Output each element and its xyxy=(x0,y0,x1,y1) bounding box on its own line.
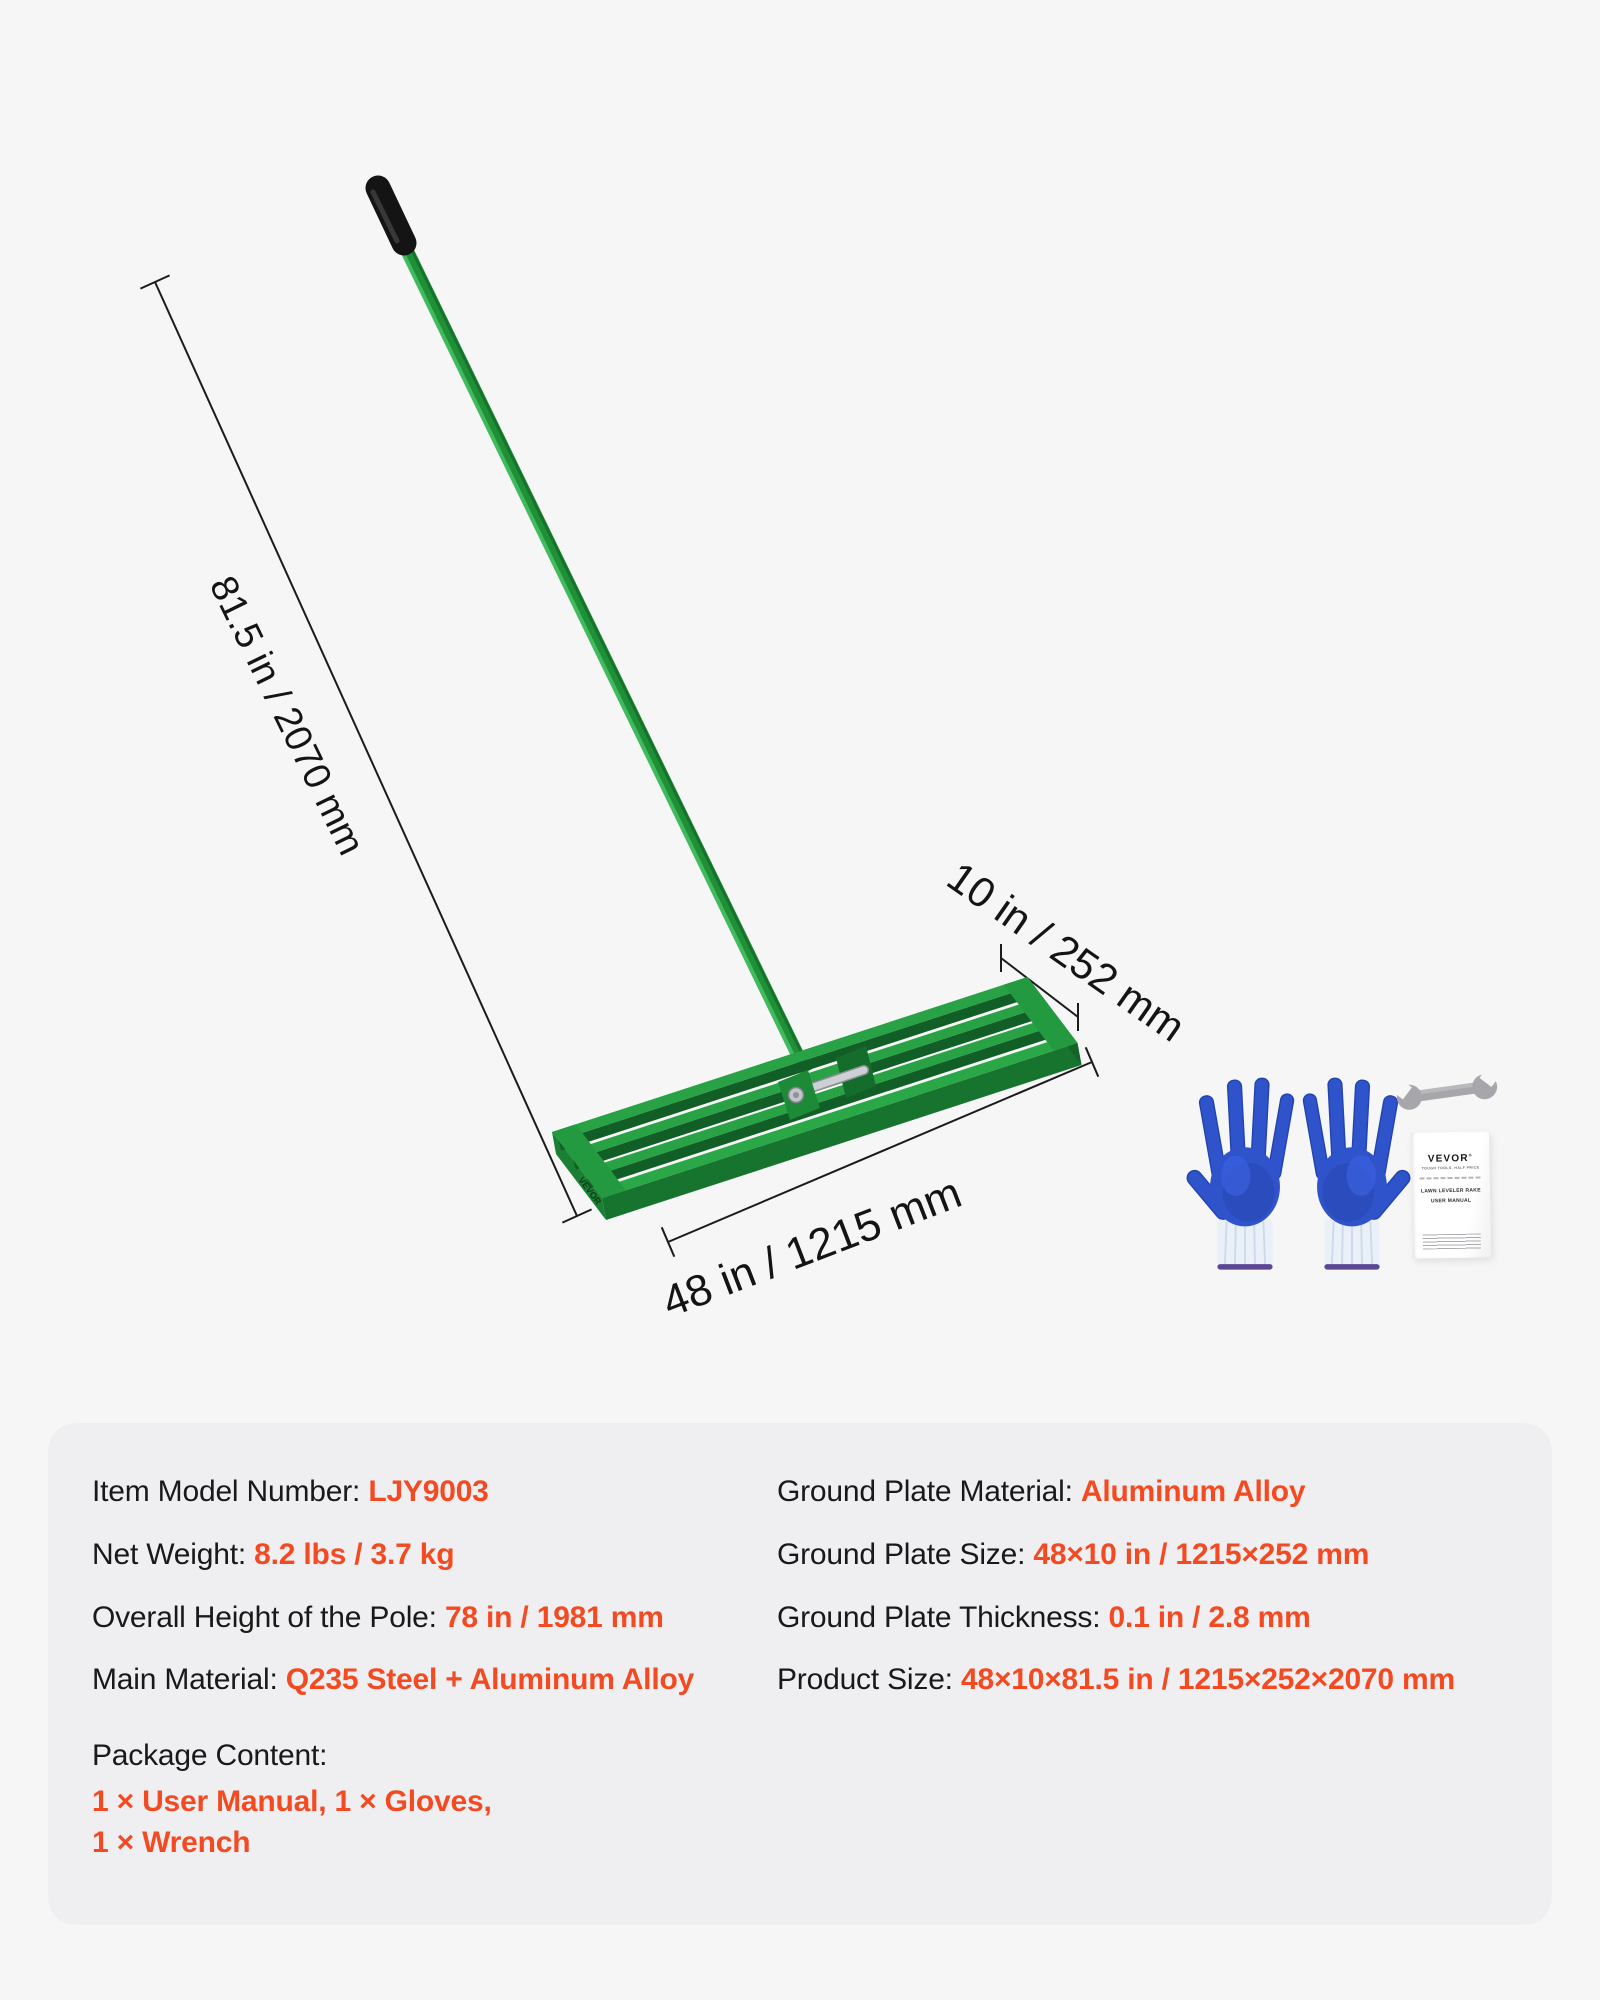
rake-illustration: VEVOR xyxy=(0,0,1600,1430)
spec-pole-height: Overall Height of the Pole: 78 in / 1981… xyxy=(92,1601,664,1635)
spec-net-weight: Net Weight: 8.2 lbs / 3.7 kg xyxy=(92,1538,454,1572)
spec-package-content-line1: 1 × User Manual, 1 × Gloves, xyxy=(92,1785,492,1819)
manual-subtitle: USER MANUAL xyxy=(1431,1198,1471,1205)
spec-package-content-label: Package Content: xyxy=(92,1739,327,1773)
manual-tagline: TOUGH TOOLS, HALF PRICE xyxy=(1422,1166,1480,1171)
wrench-icon xyxy=(1391,1066,1502,1112)
spec-product-size: Product Size: 48×10×81.5 in / 1215×252×2… xyxy=(777,1663,1455,1697)
spec-main-material: Main Material: Q235 Steel + Aluminum All… xyxy=(92,1663,694,1697)
dimension-lines xyxy=(140,275,1098,1256)
product-infographic: { "colors": { "accent_orange": "#f34a22"… xyxy=(0,0,1600,2000)
spec-plate-material: Ground Plate Material: Aluminum Alloy xyxy=(777,1475,1305,1509)
manual-brand-logo: VEVOR® xyxy=(1428,1153,1473,1165)
spec-plate-thickness: Ground Plate Thickness: 0.1 in / 2.8 mm xyxy=(777,1601,1311,1635)
dimension-line-height xyxy=(140,275,591,1222)
handle-grip xyxy=(373,188,404,243)
manual-paragraph-placeholder xyxy=(1423,1234,1481,1250)
spec-item-model: Item Model Number: LJY9003 xyxy=(92,1475,489,1509)
spec-plate-size: Ground Plate Size: 48×10 in / 1215×252 m… xyxy=(777,1538,1369,1572)
rake-handle xyxy=(373,188,810,1074)
spec-panel: Item Model Number: LJY9003 Net Weight: 8… xyxy=(48,1423,1552,1925)
gloves-image xyxy=(1184,1078,1413,1270)
manual-fineprint-line xyxy=(1420,1177,1482,1180)
product-scene: VEVOR xyxy=(0,0,1600,1430)
plate-slat-2 xyxy=(581,1015,1063,1178)
spec-package-content-line2: 1 × Wrench xyxy=(92,1826,250,1860)
manual-title: LAWN LEVELER RAKE xyxy=(1421,1188,1481,1195)
user-manual-image: VEVOR® TOUGH TOOLS, HALF PRICE LAWN LEVE… xyxy=(1411,1131,1491,1258)
